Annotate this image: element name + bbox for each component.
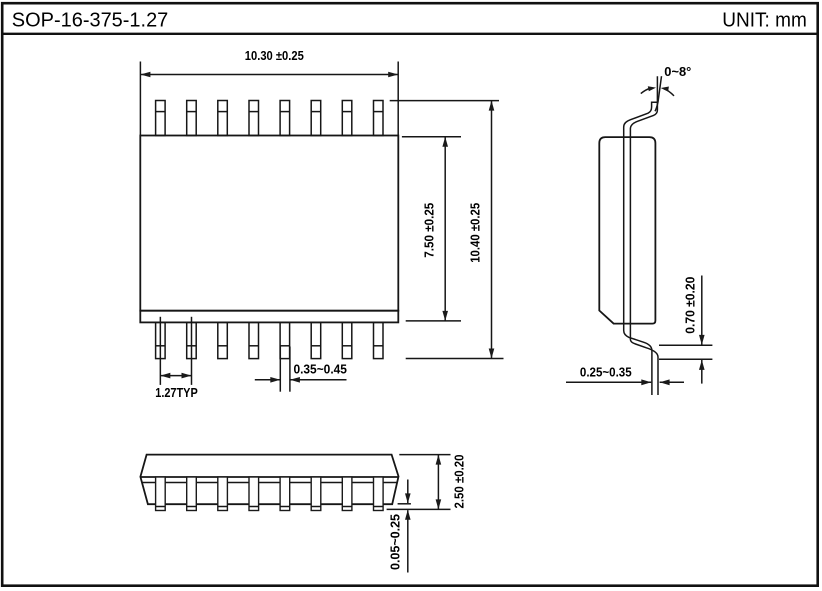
svg-text:SOP-16-375-1.27: SOP-16-375-1.27 [12,10,169,32]
svg-text:10.30 ±0.25: 10.30 ±0.25 [245,49,304,63]
svg-text:7.50 ±0.25: 7.50 ±0.25 [423,203,437,258]
svg-text:0.70 ±0.20: 0.70 ±0.20 [684,277,698,334]
svg-text:2.50 ±0.20: 2.50 ±0.20 [452,454,466,508]
svg-text:0.35~0.45: 0.35~0.45 [293,363,347,377]
svg-text:0.25~0.35: 0.25~0.35 [580,366,632,380]
svg-text:0~8°: 0~8° [664,65,691,79]
svg-text:1.27TYP: 1.27TYP [155,386,198,400]
svg-text:UNIT: mm: UNIT: mm [722,10,807,32]
svg-text:10.40 ±0.25: 10.40 ±0.25 [469,203,483,263]
svg-text:0.05~0.25: 0.05~0.25 [389,514,403,570]
